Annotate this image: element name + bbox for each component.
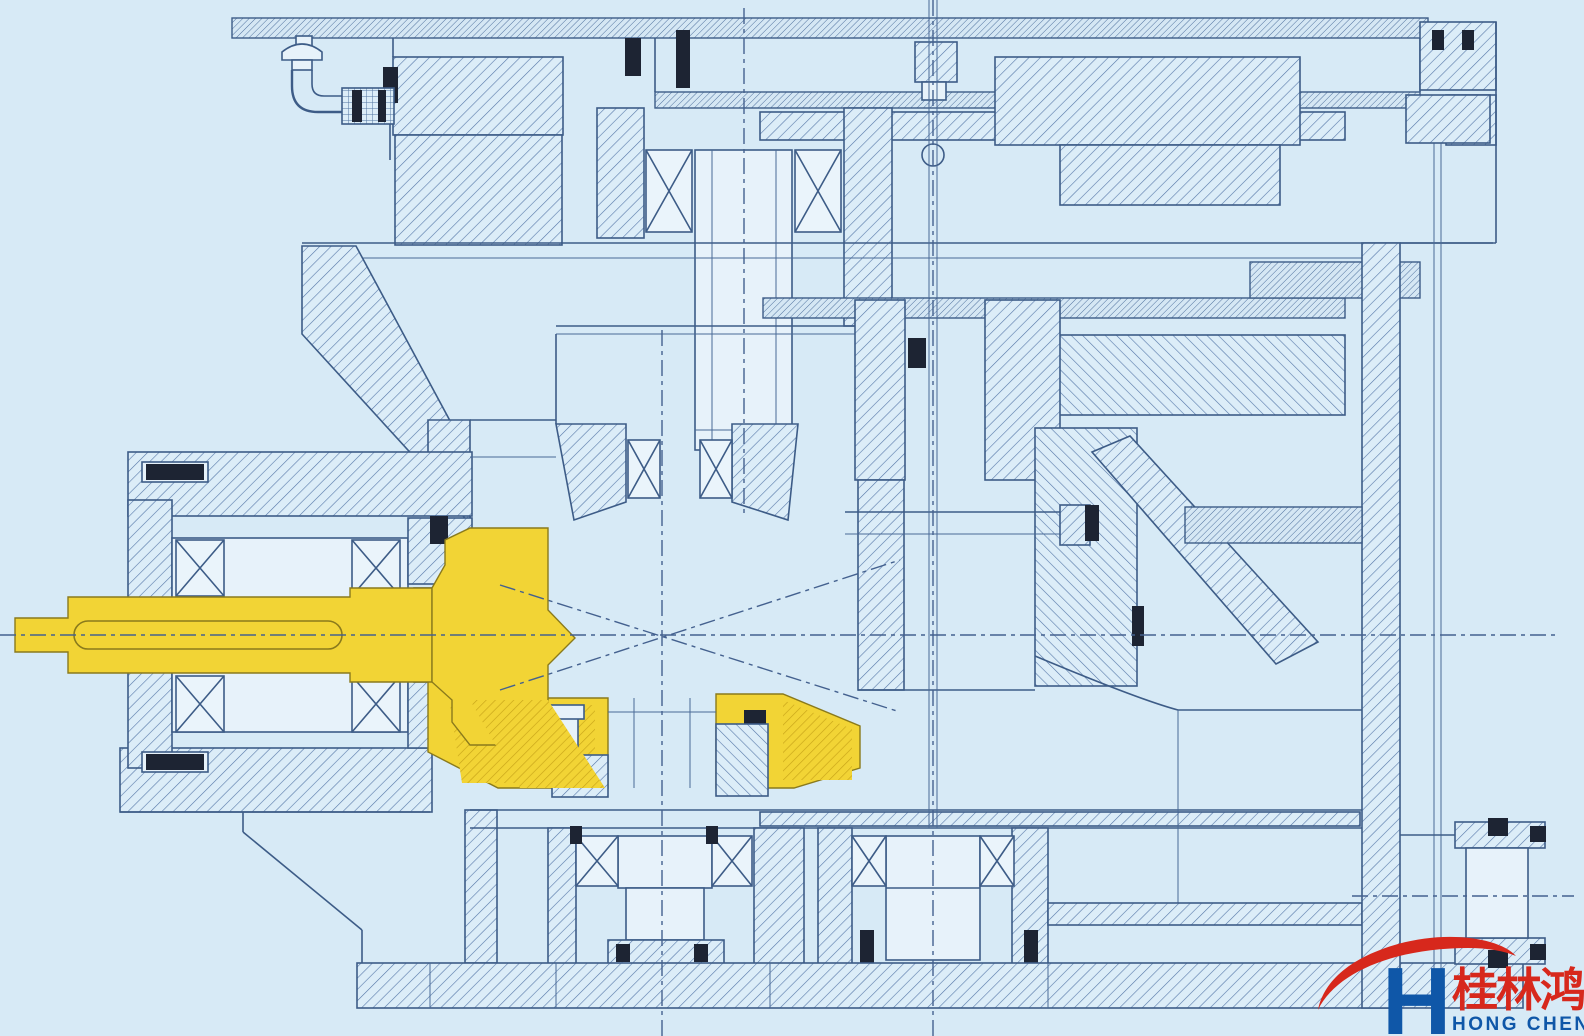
bolt xyxy=(625,38,641,76)
gearbox-sectional-drawing: H 桂林鸿程 HONG CHENG xyxy=(0,0,1584,1036)
seal-housing-right xyxy=(732,424,798,520)
pinion-lower-wall xyxy=(465,810,497,963)
seal-housing-left xyxy=(556,424,626,520)
lower-bearing-left xyxy=(548,826,804,966)
frame-cross-bar xyxy=(1185,507,1362,543)
cover-block-left-lower xyxy=(395,135,562,245)
vent-cap xyxy=(282,44,322,60)
bolt xyxy=(146,464,204,480)
drawing-canvas: H 桂林鸿程 HONG CHENG xyxy=(0,0,1584,1036)
cover-block-left xyxy=(393,57,563,135)
bolt xyxy=(146,754,204,770)
right-frame xyxy=(1185,95,1546,1008)
breather-vent-pipe xyxy=(282,36,394,124)
inspection-cover xyxy=(1466,848,1528,938)
cover-block-right xyxy=(995,57,1300,145)
logo-brand-english: HONG CHENG xyxy=(1452,1014,1584,1035)
cover-corner-right xyxy=(1420,22,1496,90)
logo-brand-chinese: 桂林鸿程 xyxy=(1452,963,1584,1017)
bolt xyxy=(676,30,690,88)
top-plate xyxy=(232,18,1428,38)
logo-h-icon: H xyxy=(1382,948,1451,1036)
pipe-coupling xyxy=(342,88,394,124)
right-wall xyxy=(1362,243,1400,1008)
